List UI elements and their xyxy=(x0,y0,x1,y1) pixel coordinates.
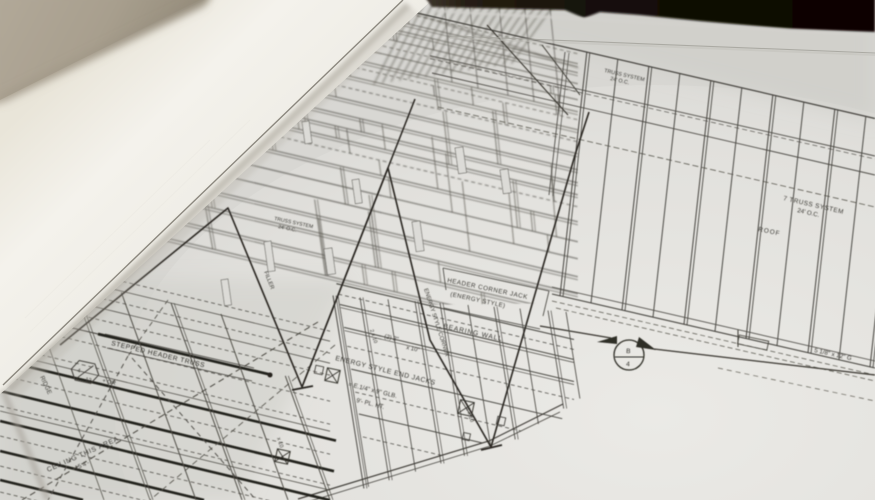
svg-text:12: 12 xyxy=(85,377,92,384)
